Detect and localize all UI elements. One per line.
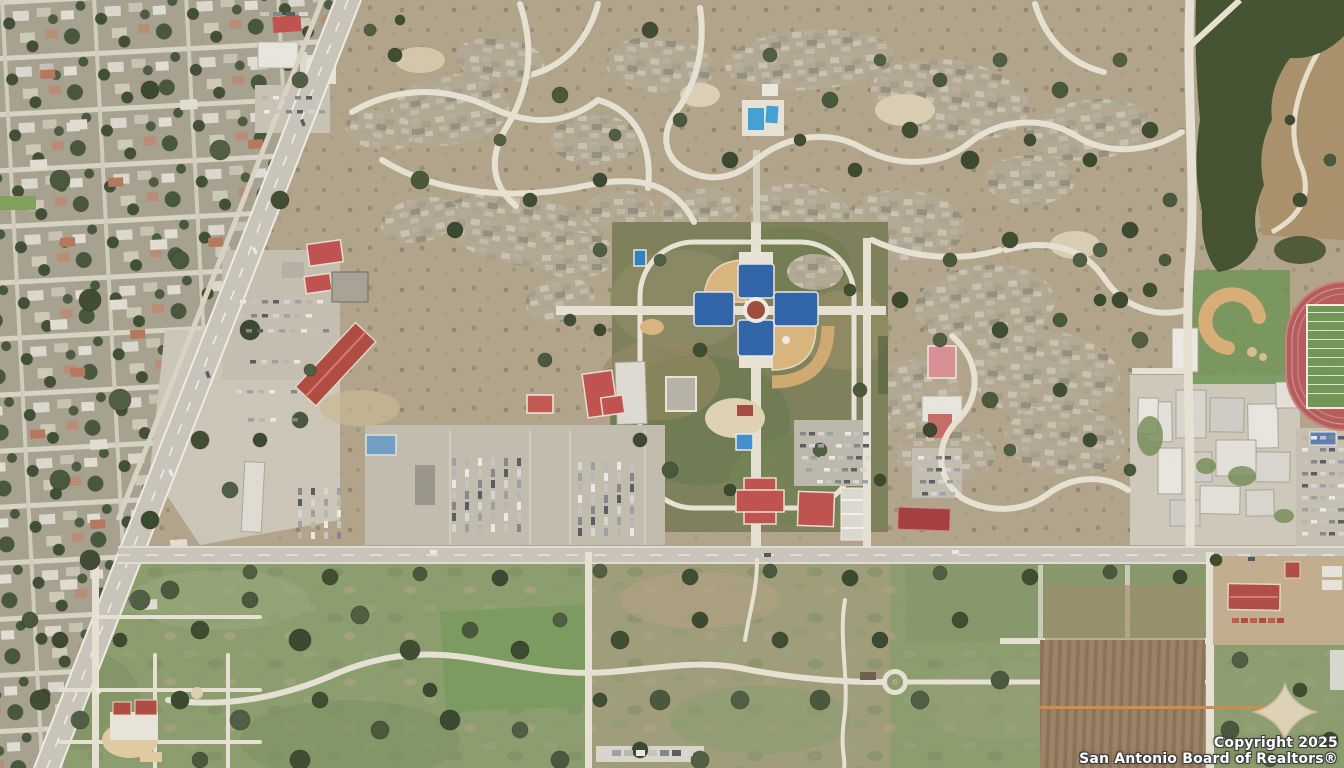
copyright-watermark: Copyright 2025 San Antonio Board of Real… [1079, 735, 1338, 767]
watermark-line1: Copyright 2025 [1079, 735, 1338, 751]
aerial-photo: Copyright 2025 San Antonio Board of Real… [0, 0, 1344, 768]
scene-svg [0, 0, 1344, 768]
watermark-line2: San Antonio Board of Realtors® [1079, 751, 1338, 767]
grain-overlay [0, 0, 1344, 768]
